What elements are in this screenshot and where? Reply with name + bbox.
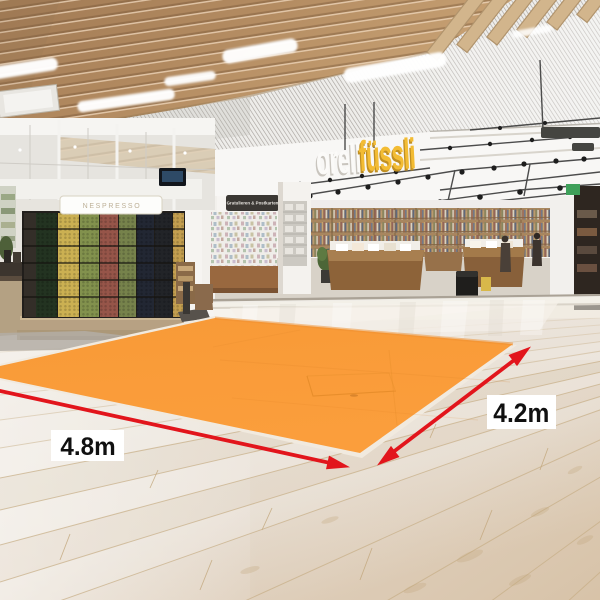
svg-text:füssli: füssli (358, 131, 417, 181)
svg-text:4.8m: 4.8m (60, 434, 115, 461)
svg-text:NESPRESSO: NESPRESSO (83, 203, 142, 210)
svg-text:orell: orell (315, 136, 362, 184)
svg-text:Gratulieren & Postkarten: Gratulieren & Postkarten (227, 201, 279, 206)
svg-text:4.2m: 4.2m (493, 399, 549, 428)
